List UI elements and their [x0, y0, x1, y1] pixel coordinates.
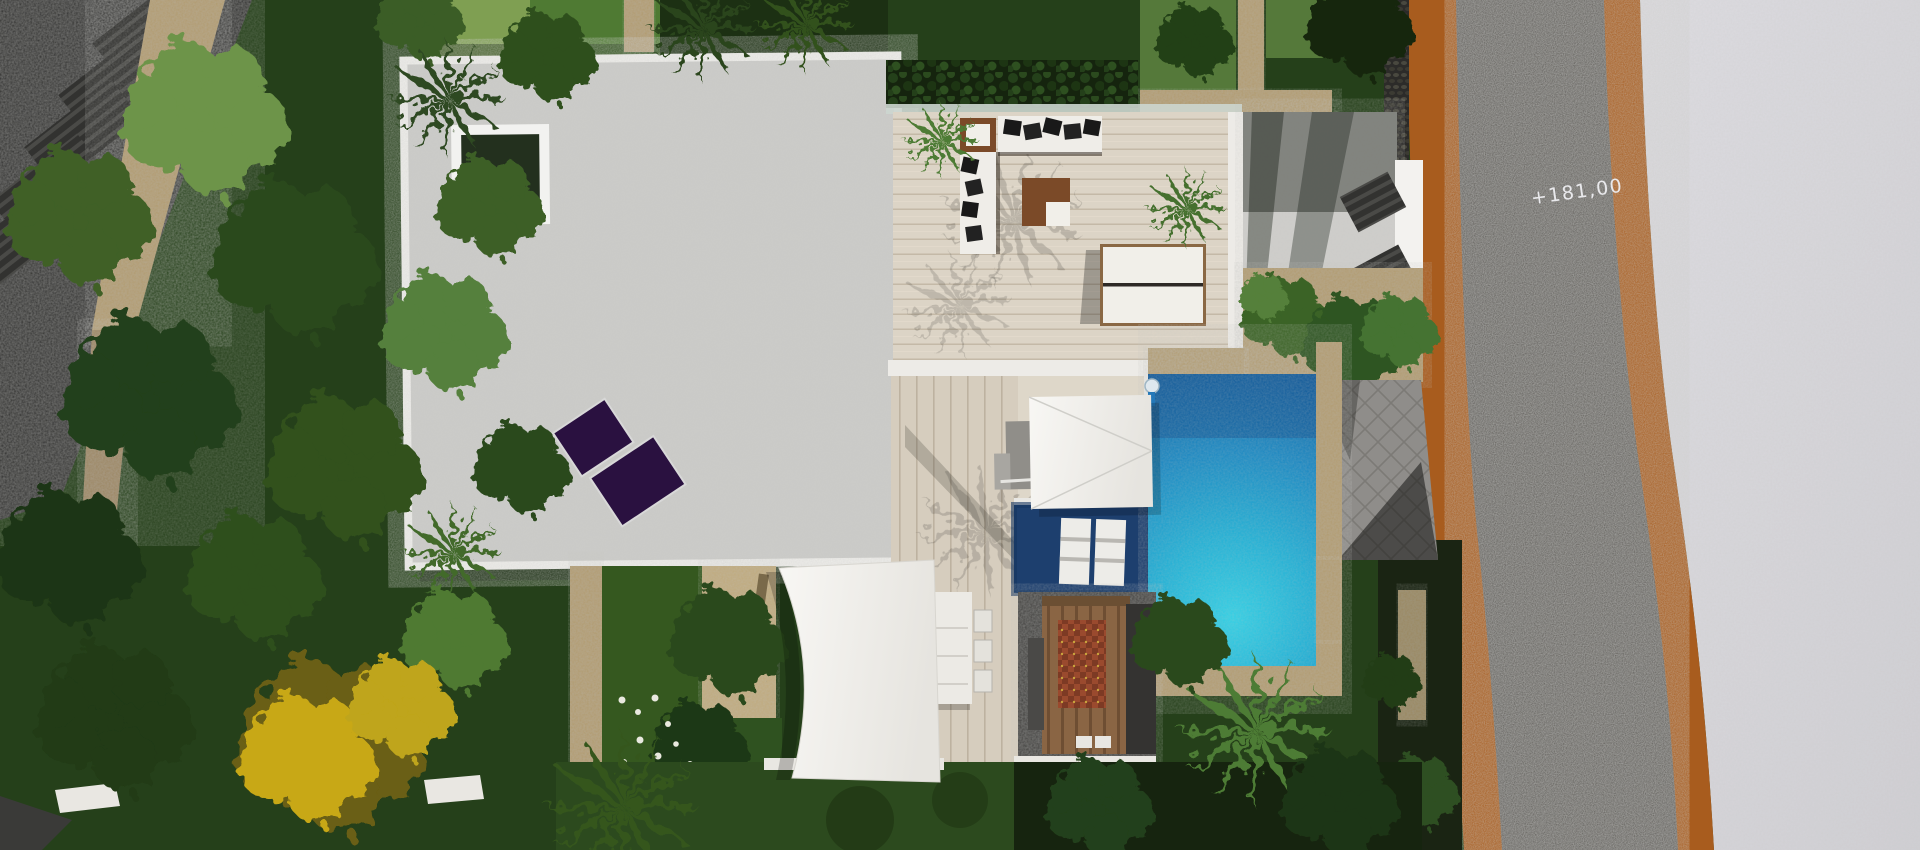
kitchen-sink [1076, 736, 1092, 748]
kitchen-sink [1095, 736, 1111, 748]
chair [974, 610, 992, 632]
kitchen-counter [1028, 638, 1044, 730]
outdoor-kitchen [1014, 592, 1156, 768]
terrace-edge [1228, 112, 1244, 376]
aerial-render: +181,00 [0, 0, 1920, 850]
stone-pillar [624, 0, 654, 52]
terrace-edge [888, 360, 1150, 376]
driveway [1332, 380, 1438, 560]
roof-terrace [886, 60, 1244, 376]
chair [974, 670, 992, 692]
terrace-hedge [886, 60, 1138, 108]
kitchen-rug [1058, 620, 1106, 708]
garden-path [424, 775, 484, 804]
double-sunbed [1080, 244, 1206, 326]
shade-sail [766, 560, 940, 782]
pool-shower [1145, 379, 1159, 393]
chair [974, 640, 992, 662]
pool-stone-top [1148, 348, 1244, 376]
render-viewport: +181,00 [0, 0, 1920, 850]
coffee-table [1022, 178, 1070, 226]
